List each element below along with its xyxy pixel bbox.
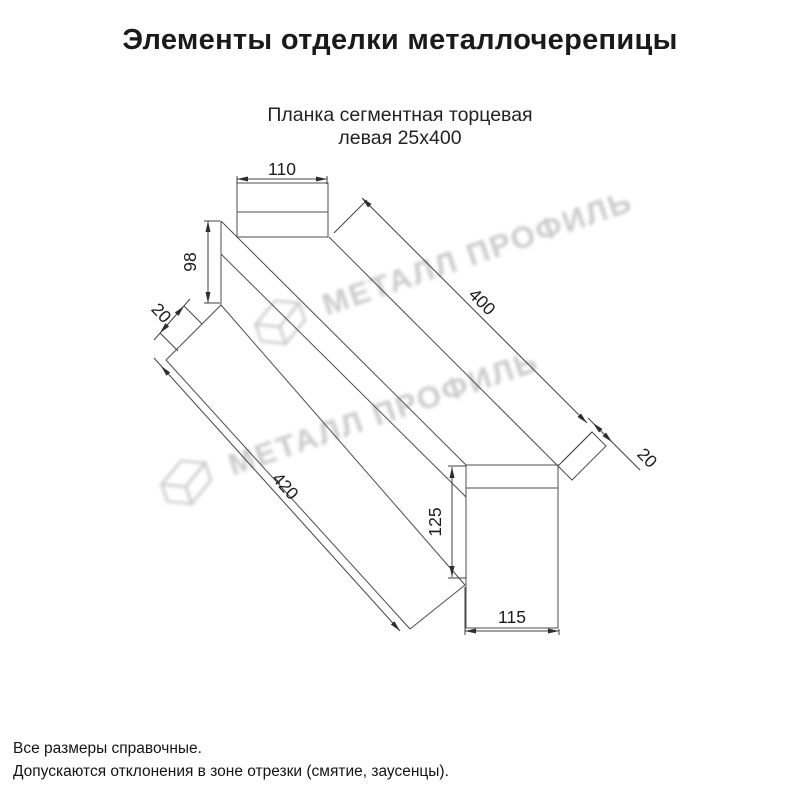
technical-drawing: 110 98 20 400 420 20 bbox=[0, 0, 800, 800]
dimension-right-hem-width: 20 bbox=[588, 418, 661, 472]
right-hem-flap bbox=[558, 432, 606, 480]
dimension-top-flange-width: 110 bbox=[237, 159, 327, 184]
dimension-115-label: 115 bbox=[498, 607, 526, 627]
dimension-110-label: 110 bbox=[268, 159, 296, 179]
top-inner-edge bbox=[329, 237, 558, 466]
right-end-edge-diagonal bbox=[410, 585, 465, 629]
top-outer-edge bbox=[221, 221, 466, 465]
right-end-cap bbox=[466, 465, 558, 628]
dimension-bottom-edge-length: 420 bbox=[154, 358, 400, 631]
left-end-cap bbox=[237, 183, 328, 237]
front-bottom-edge bbox=[221, 305, 465, 585]
dimension-top-edge-length: 400 bbox=[334, 198, 592, 462]
dimension-125-label: 125 bbox=[425, 507, 445, 536]
dimension-left-end-height: 98 bbox=[180, 221, 220, 303]
dimension-20-left-label: 20 bbox=[147, 299, 175, 327]
dimension-420-label: 420 bbox=[268, 468, 303, 503]
part-outline bbox=[166, 183, 606, 629]
dimension-right-end-height: 125 bbox=[425, 466, 466, 578]
dimension-98-label: 98 bbox=[180, 252, 200, 271]
dimension-left-hem-width: 20 bbox=[147, 299, 202, 351]
dimension-400-label: 400 bbox=[465, 284, 500, 319]
